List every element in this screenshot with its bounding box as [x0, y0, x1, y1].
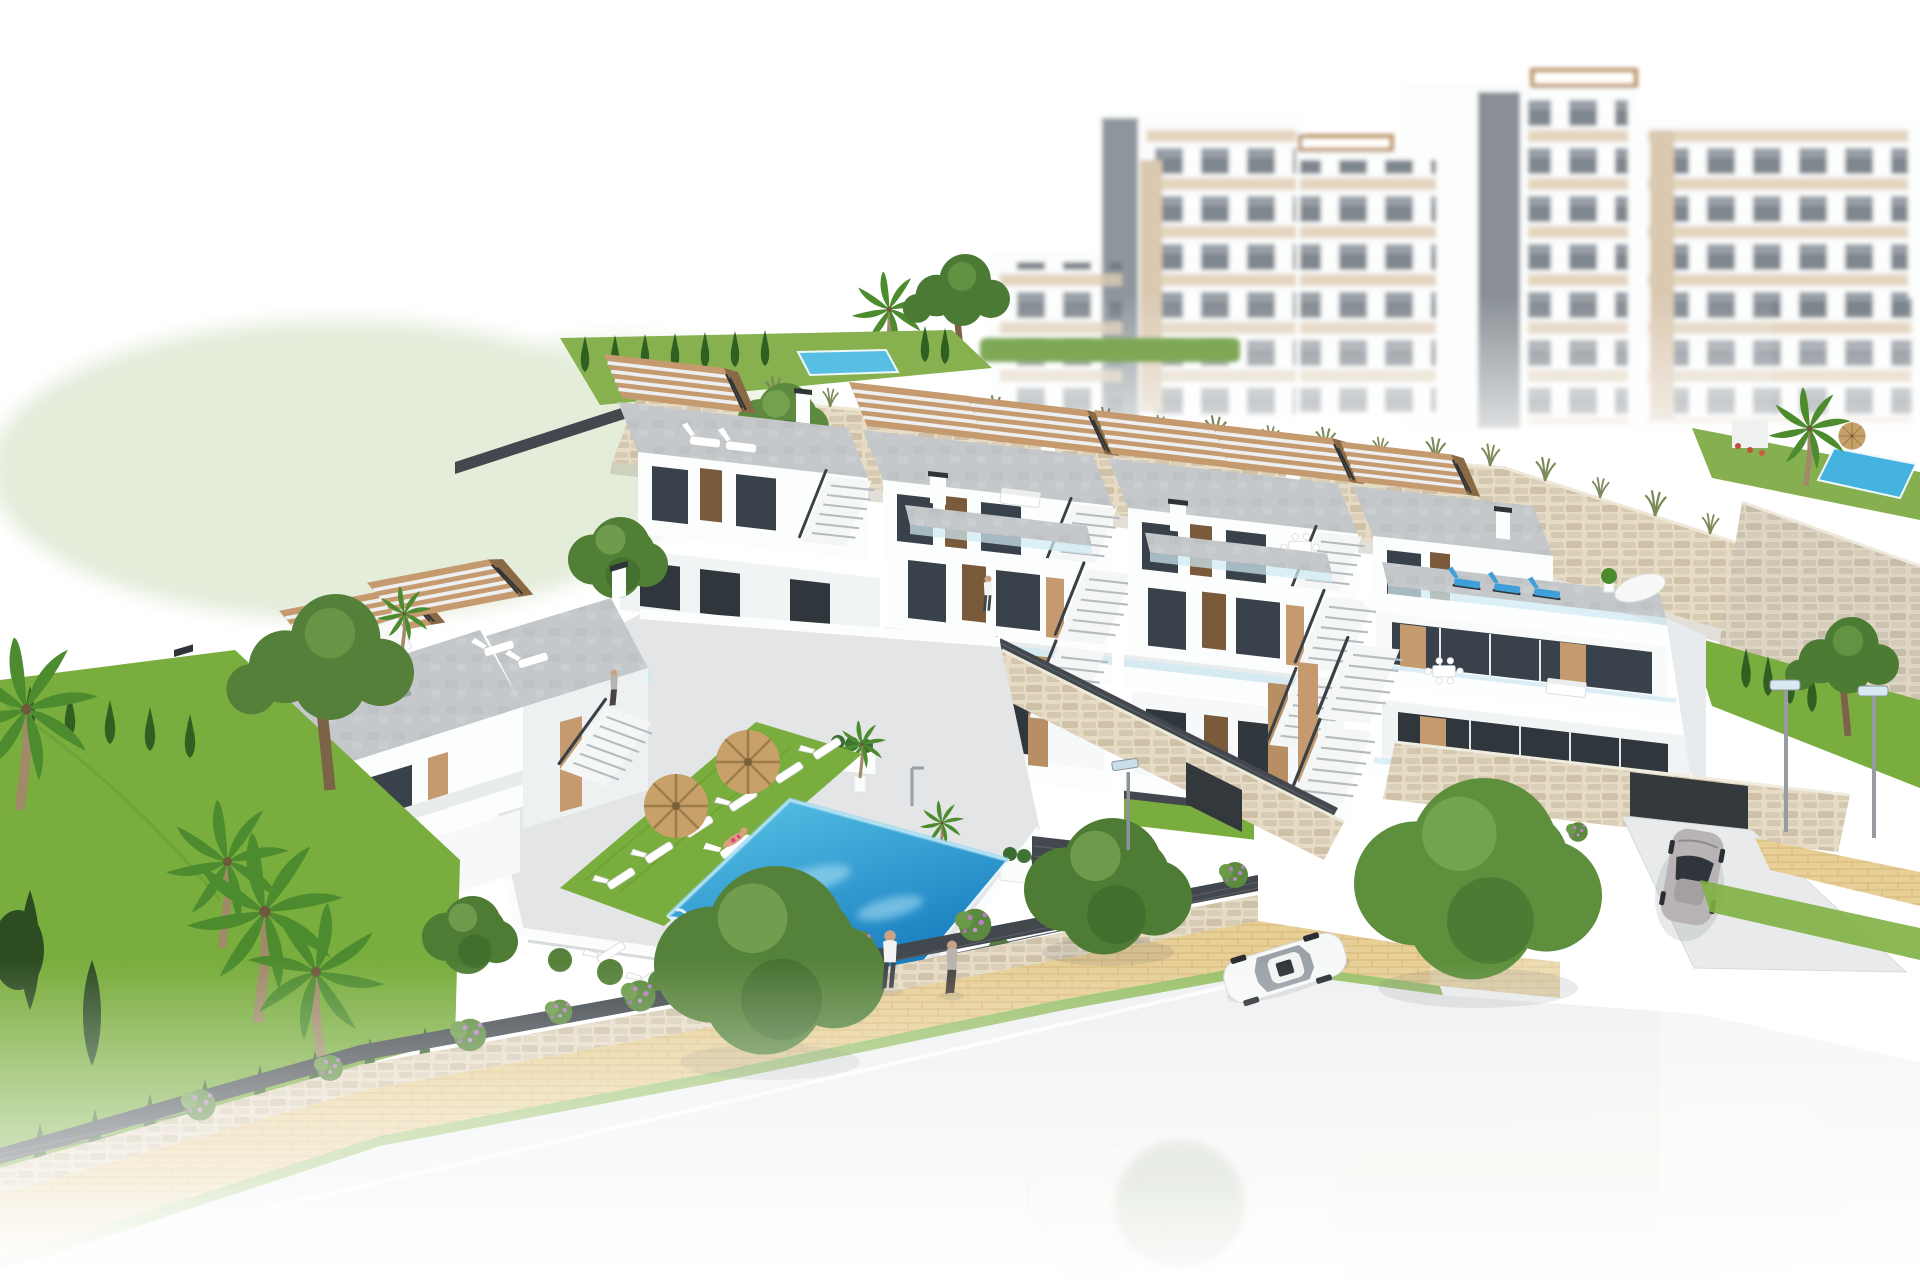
- render-canvas: Aerial 3D architectural rendering of a w…: [0, 0, 1920, 1280]
- hedge-row: [980, 338, 1240, 362]
- straw-umbrella: [1838, 422, 1865, 449]
- scene-root: Aerial 3D architectural rendering of a w…: [0, 0, 1920, 1280]
- straw-umbrella: [716, 730, 780, 794]
- garden-lap-pool: [798, 350, 898, 375]
- faded-foreground: [0, 960, 1920, 1280]
- straw-umbrella: [644, 774, 708, 838]
